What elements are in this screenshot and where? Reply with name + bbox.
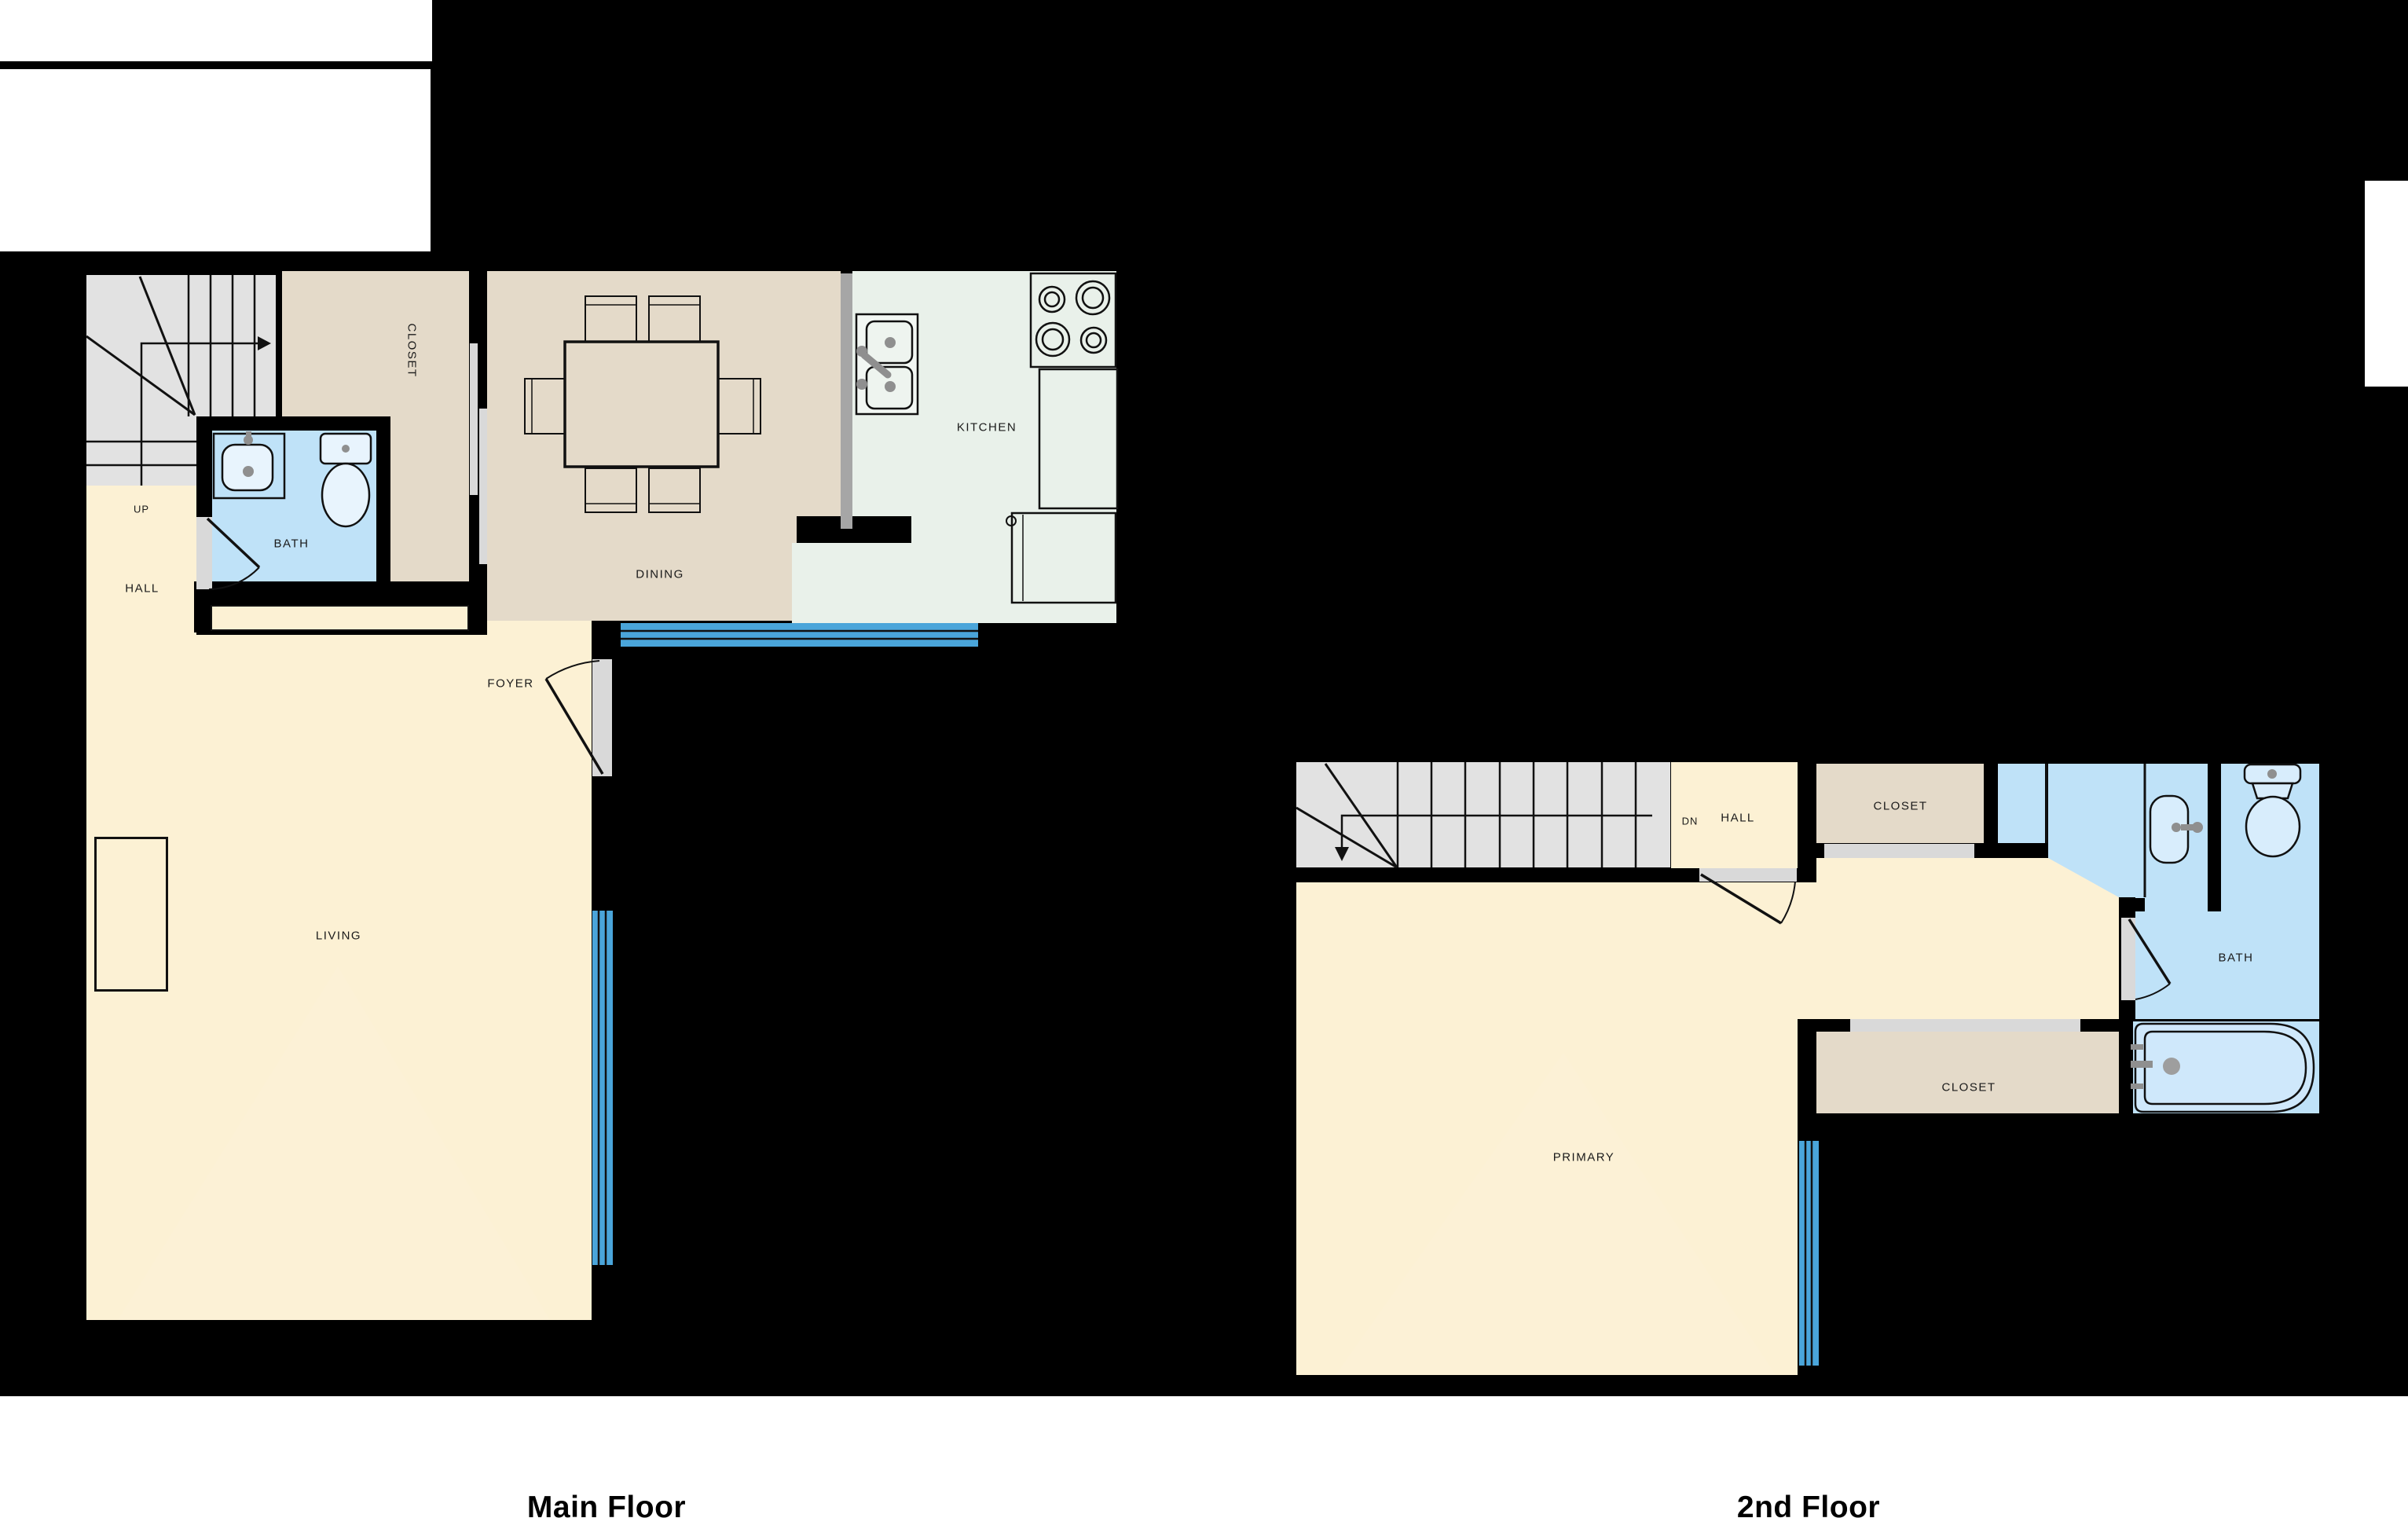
closet-bottom-opening — [1850, 1019, 2080, 1032]
secondfloor-closet-bottom — [1816, 1032, 2119, 1113]
label-hall-second: HALL — [1721, 812, 1755, 825]
mainfloor-stairs — [86, 275, 276, 416]
paper-upper-block — [0, 69, 431, 251]
secondfloor-stairs — [1296, 762, 1670, 867]
fireplace-box — [94, 837, 168, 992]
closet-bottom-right-wall — [2080, 1019, 2133, 1032]
label-bath-main: BATH — [274, 537, 310, 551]
secondfloor-primary-main — [1296, 1019, 1798, 1375]
kitchen-stub-wall — [797, 516, 911, 543]
label-closet-bottom: CLOSET — [1941, 1081, 1996, 1094]
mainfloor-kitchen-extension — [792, 543, 852, 623]
closet-bypass-door-2 — [479, 409, 487, 564]
foyer-storage-niche — [211, 605, 469, 631]
caption-2nd-floor: 2nd Floor — [1737, 1490, 1880, 1518]
secondfloor-bath-upper — [2048, 764, 2145, 897]
label-dining: DINING — [636, 568, 684, 581]
mainfloor-kitchen — [852, 271, 1116, 623]
kitchen-counter-strip — [841, 273, 852, 529]
mainfloor-bath — [212, 431, 376, 591]
storage-cap-right — [469, 581, 486, 632]
primary-window — [1799, 1141, 1819, 1366]
front-door-opening — [592, 659, 612, 776]
vanity-right-wall — [2208, 762, 2221, 911]
floorplan-canvas: UP HALL BATH CLOSET DINING KITCHEN FOYER… — [0, 0, 2408, 1518]
bathdoor-stub-lower — [2120, 1002, 2135, 1019]
secondfloor-linen — [1998, 764, 2045, 843]
mainfloor-closet — [282, 271, 469, 416]
secondfloor-tub-zone — [2133, 1021, 2319, 1113]
label-hall-main: HALL — [125, 582, 159, 596]
label-living: LIVING — [316, 929, 361, 943]
mainfloor-stairs-lower — [86, 416, 196, 486]
closet-top-opening — [1824, 844, 1974, 858]
secondfloor-bath-toilet-column — [2221, 764, 2319, 1019]
label-bath-second: BATH — [2219, 951, 2254, 965]
closet-bypass-door-1 — [470, 343, 478, 495]
living-window — [592, 911, 613, 1265]
linen-stub-wall — [1998, 843, 2045, 858]
secondfloor-primary-strip — [1816, 858, 2048, 882]
label-dn: DN — [1682, 816, 1699, 827]
caption-main-floor: Main Floor — [527, 1490, 686, 1518]
bath-door-opening — [196, 517, 212, 589]
paper-top-strip — [0, 0, 432, 61]
paper-bottom-band — [0, 1396, 2408, 1518]
secondfloor-primary-upper-right — [2048, 897, 2119, 1019]
label-kitchen: KITCHEN — [957, 421, 1017, 434]
bathdoor-stub-upper — [2120, 898, 2145, 911]
bath-bottom-wall — [194, 581, 486, 607]
label-closet-main: CLOSET — [405, 323, 419, 377]
label-up: UP — [134, 504, 149, 515]
secondfloor-bath-vanity — [2145, 764, 2208, 897]
label-primary: PRIMARY — [1553, 1151, 1615, 1164]
bath2-door-opening — [2121, 918, 2135, 1000]
secondfloor-bath-lower — [2135, 897, 2221, 1019]
paper-right-notch — [2365, 181, 2408, 387]
hall-door-opening — [1699, 868, 1797, 882]
label-foyer: FOYER — [487, 677, 533, 691]
secondfloor-primary-upper — [1296, 882, 2048, 1019]
mainfloor-closet-column — [390, 416, 469, 581]
label-closet-top: CLOSET — [1873, 800, 1927, 813]
dining-window — [621, 623, 978, 647]
